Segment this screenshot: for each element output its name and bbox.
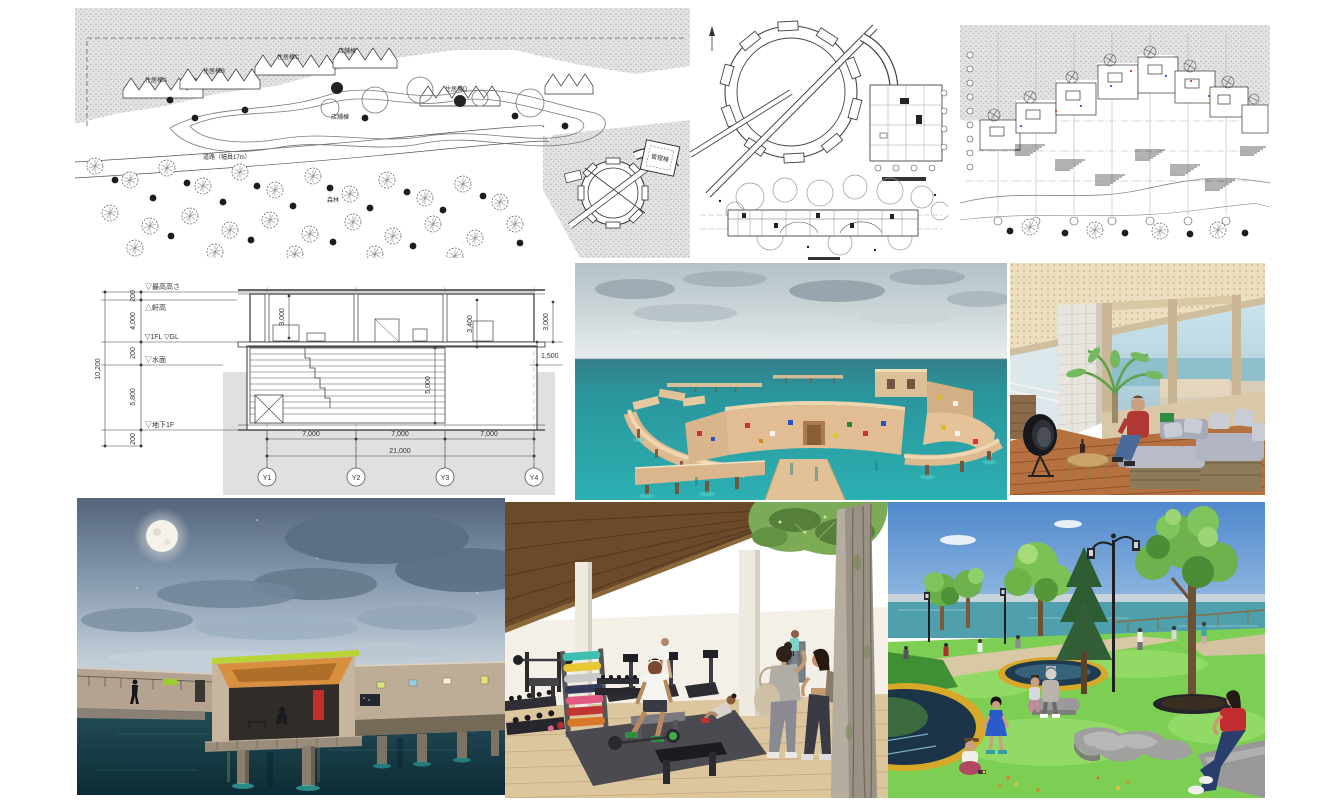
dim-200-c: 200 (130, 433, 137, 445)
north-arrow-icon (709, 26, 715, 51)
hillside-housing-plan (960, 25, 1270, 240)
terrace-lounge-render (1010, 263, 1265, 495)
waterfront-park-render (888, 502, 1265, 798)
red-door (313, 690, 324, 720)
dim-10200: 10,200 (95, 358, 102, 380)
dim-200-a: 200 (130, 290, 137, 302)
dark-sign (360, 694, 380, 706)
road-label: 道路（幅員17m） (203, 153, 251, 161)
dim-3400: 3,400 (467, 315, 474, 333)
dim-pool-5000: 5,000 (425, 376, 432, 394)
level-eave: △軒高 (145, 303, 166, 312)
ring-pier-plan (690, 21, 894, 195)
building-c-label: 住居棟C (277, 53, 300, 61)
building-a-label: 住居棟A (145, 76, 167, 84)
moon (146, 520, 178, 552)
level-max-height: ▽最高高さ (145, 282, 180, 291)
grid-y4: Y4 (530, 475, 539, 482)
terrace-stairs (1015, 145, 1266, 190)
dim-bay-1: 7,000 (302, 431, 320, 438)
shop-label: 店舗棟 (338, 47, 356, 55)
grid-y1: Y1 (263, 475, 272, 482)
forest-trees (87, 97, 568, 258)
dim-bay-2: 7,000 (391, 431, 409, 438)
building-b-label: 住居棟B (203, 67, 225, 75)
grid-y2: Y2 (352, 475, 361, 482)
lit-sign (163, 679, 177, 685)
site-plan-drawing: 管理棟 住居棟A 住居棟B 住居棟C 住居棟D 店舗棟 店舗棟 道路（幅員17m… (75, 8, 690, 258)
section-drawing: ▽最高高さ △軒高 ▽1FL ▽GL ▽水面 ▽地下1F 200 4,000 2… (75, 263, 575, 495)
building-d-label: 住居棟D (445, 85, 468, 93)
detail-plan (870, 85, 947, 181)
grid-y3: Y3 (441, 475, 450, 482)
level-basement: ▽地下1F (145, 420, 174, 429)
presentation-board: 管理棟 住居棟A 住居棟B 住居棟C 住居棟D 店舗棟 店舗棟 道路（幅員17m… (0, 0, 1340, 800)
master-plan-drawing (690, 5, 948, 265)
level-1fl: ▽1FL ▽GL (145, 334, 179, 341)
dim-room-3000: 3,000 (279, 308, 286, 326)
plaza-tree (331, 82, 343, 94)
long-building-plan (700, 175, 948, 260)
left-walkway (77, 668, 212, 720)
shop-label-2: 店舗棟 (331, 113, 349, 121)
plaza-tree (454, 95, 466, 107)
level-water: ▽水面 (145, 355, 166, 364)
forest-label: 森林 (327, 196, 339, 204)
plan-trees (1007, 219, 1249, 239)
tree-trunk (831, 502, 877, 798)
dim-21000: 21,000 (389, 448, 411, 455)
dim-4000: 4,000 (130, 312, 137, 330)
dim-bay-3: 7,000 (480, 431, 498, 438)
dim-5800: 5,800 (130, 388, 137, 406)
dim-parapet-3000: 3,000 (543, 313, 550, 331)
floating-facility-render (575, 263, 1007, 500)
dim-200-b: 200 (130, 347, 137, 359)
gym-interior-render (505, 502, 888, 798)
night-pool-render (77, 498, 505, 795)
dim-1500: 1,500 (541, 353, 559, 360)
